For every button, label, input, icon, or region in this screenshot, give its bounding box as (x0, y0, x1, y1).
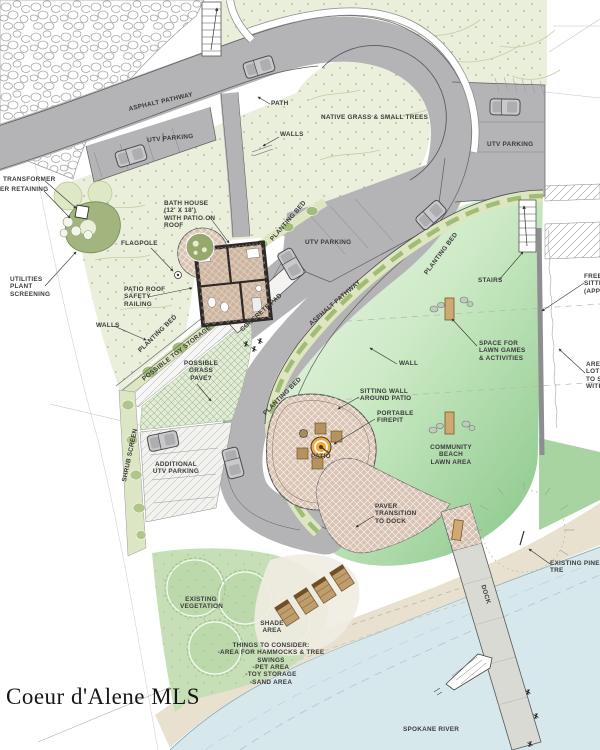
east-retaining-wall (539, 184, 600, 455)
site-plan-drawing (0, 0, 600, 750)
site-plan-page: ASPHALT PATHWAY PATH NATIVE GRASS & SMAL… (0, 0, 600, 750)
stairs-top (202, 2, 221, 56)
flagpole-symbol (175, 272, 182, 279)
watermark-mls: Coeur d'Alene MLS (6, 684, 200, 709)
stairs-east (519, 200, 536, 252)
